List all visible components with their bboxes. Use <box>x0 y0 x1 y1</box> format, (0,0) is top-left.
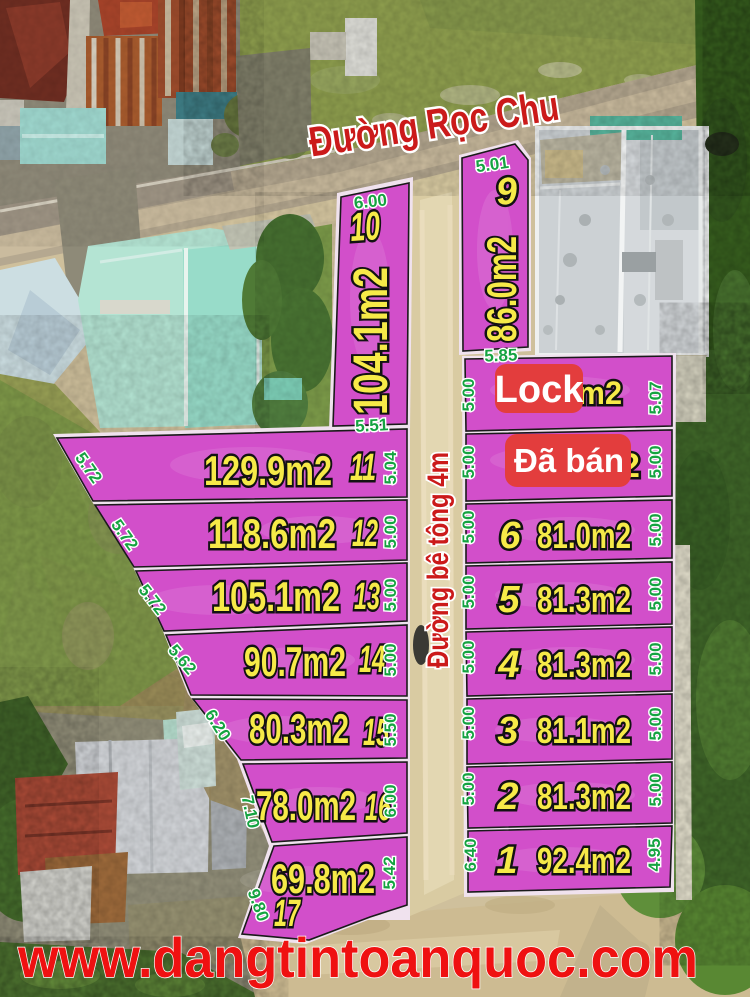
svg-text:5.00: 5.00 <box>646 773 665 806</box>
svg-text:5.00: 5.00 <box>646 707 665 740</box>
svg-text:78.0m2: 78.0m2 <box>256 782 356 829</box>
svg-text:81.3m2: 81.3m2 <box>537 579 631 620</box>
svg-text:5.85: 5.85 <box>484 345 518 365</box>
svg-text:104.1m2: 104.1m2 <box>345 267 398 415</box>
svg-text:5.00: 5.00 <box>646 577 665 610</box>
svg-text:5.00: 5.00 <box>381 578 400 611</box>
svg-text:90.7m2: 90.7m2 <box>244 638 346 685</box>
svg-text:5.04: 5.04 <box>381 451 400 485</box>
svg-text:5.50: 5.50 <box>381 713 400 746</box>
svg-text:3: 3 <box>497 710 518 752</box>
svg-text:2: 2 <box>496 776 518 818</box>
svg-text:13: 13 <box>354 576 380 618</box>
svg-text:6.00: 6.00 <box>353 190 388 212</box>
svg-text:80.3m2: 80.3m2 <box>249 705 349 752</box>
svg-text:118.6m2: 118.6m2 <box>208 510 336 557</box>
svg-text:105.1m2: 105.1m2 <box>212 573 340 620</box>
svg-text:5.00: 5.00 <box>459 772 478 805</box>
svg-text:5.00: 5.00 <box>459 510 478 543</box>
svg-text:5.00: 5.00 <box>646 642 665 675</box>
svg-text:81.3m2: 81.3m2 <box>537 644 631 685</box>
svg-text:86.0m2: 86.0m2 <box>478 236 525 342</box>
svg-text:4: 4 <box>497 644 519 686</box>
svg-text:5.00: 5.00 <box>459 445 478 478</box>
svg-text:1: 1 <box>496 840 517 882</box>
svg-text:5.00: 5.00 <box>381 643 400 676</box>
svg-text:11: 11 <box>350 447 376 489</box>
svg-text:Đường bê tông 4m: Đường bê tông 4m <box>422 452 455 668</box>
svg-text:5.00: 5.00 <box>459 706 478 739</box>
svg-text:5.07: 5.07 <box>646 381 665 414</box>
svg-text:5.00: 5.00 <box>381 515 400 548</box>
svg-text:Đã bán: Đã bán <box>514 442 624 479</box>
svg-text:9: 9 <box>494 170 519 214</box>
svg-text:5.00: 5.00 <box>646 445 665 478</box>
svg-text:www.dangtintoanquoc.com: www.dangtintoanquoc.com <box>17 926 698 989</box>
svg-text:6.40: 6.40 <box>461 838 480 871</box>
svg-text:5.00: 5.00 <box>646 513 665 546</box>
svg-text:81.1m2: 81.1m2 <box>537 710 631 751</box>
svg-text:81.0m2: 81.0m2 <box>537 515 631 556</box>
svg-text:129.9m2: 129.9m2 <box>204 447 332 494</box>
svg-text:5: 5 <box>498 579 520 621</box>
svg-text:Lock: Lock <box>495 369 585 411</box>
svg-text:5.00: 5.00 <box>459 640 478 673</box>
svg-text:5.42: 5.42 <box>380 856 399 889</box>
svg-text:5.51: 5.51 <box>355 415 389 436</box>
svg-text:6: 6 <box>499 515 521 557</box>
svg-text:4.95: 4.95 <box>645 838 664 871</box>
svg-text:92.4m2: 92.4m2 <box>537 840 631 881</box>
svg-text:12: 12 <box>352 513 378 555</box>
svg-text:5.00: 5.00 <box>459 378 478 411</box>
svg-text:5.00: 5.00 <box>459 575 478 608</box>
svg-text:81.3m2: 81.3m2 <box>537 776 631 817</box>
svg-text:6.00: 6.00 <box>381 784 400 817</box>
